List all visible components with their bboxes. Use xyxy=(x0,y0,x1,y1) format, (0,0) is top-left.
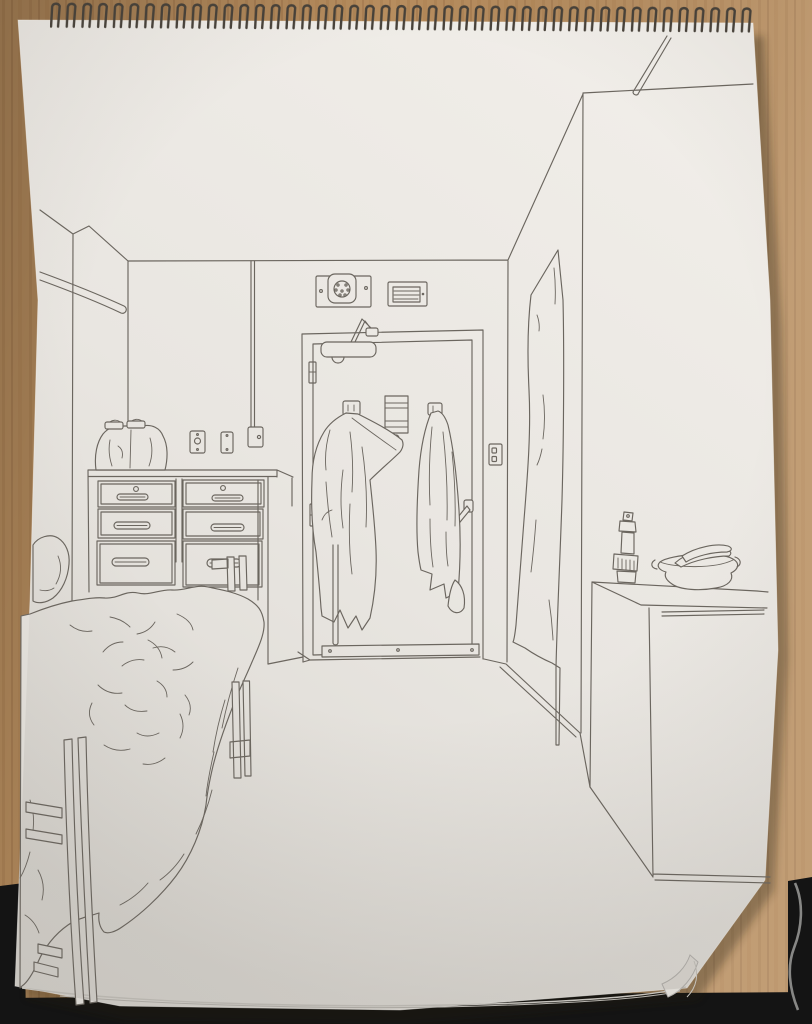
paper-vignette xyxy=(15,20,778,1010)
photo-of-sketchbook xyxy=(0,0,812,1024)
photo-canvas xyxy=(0,0,812,1024)
